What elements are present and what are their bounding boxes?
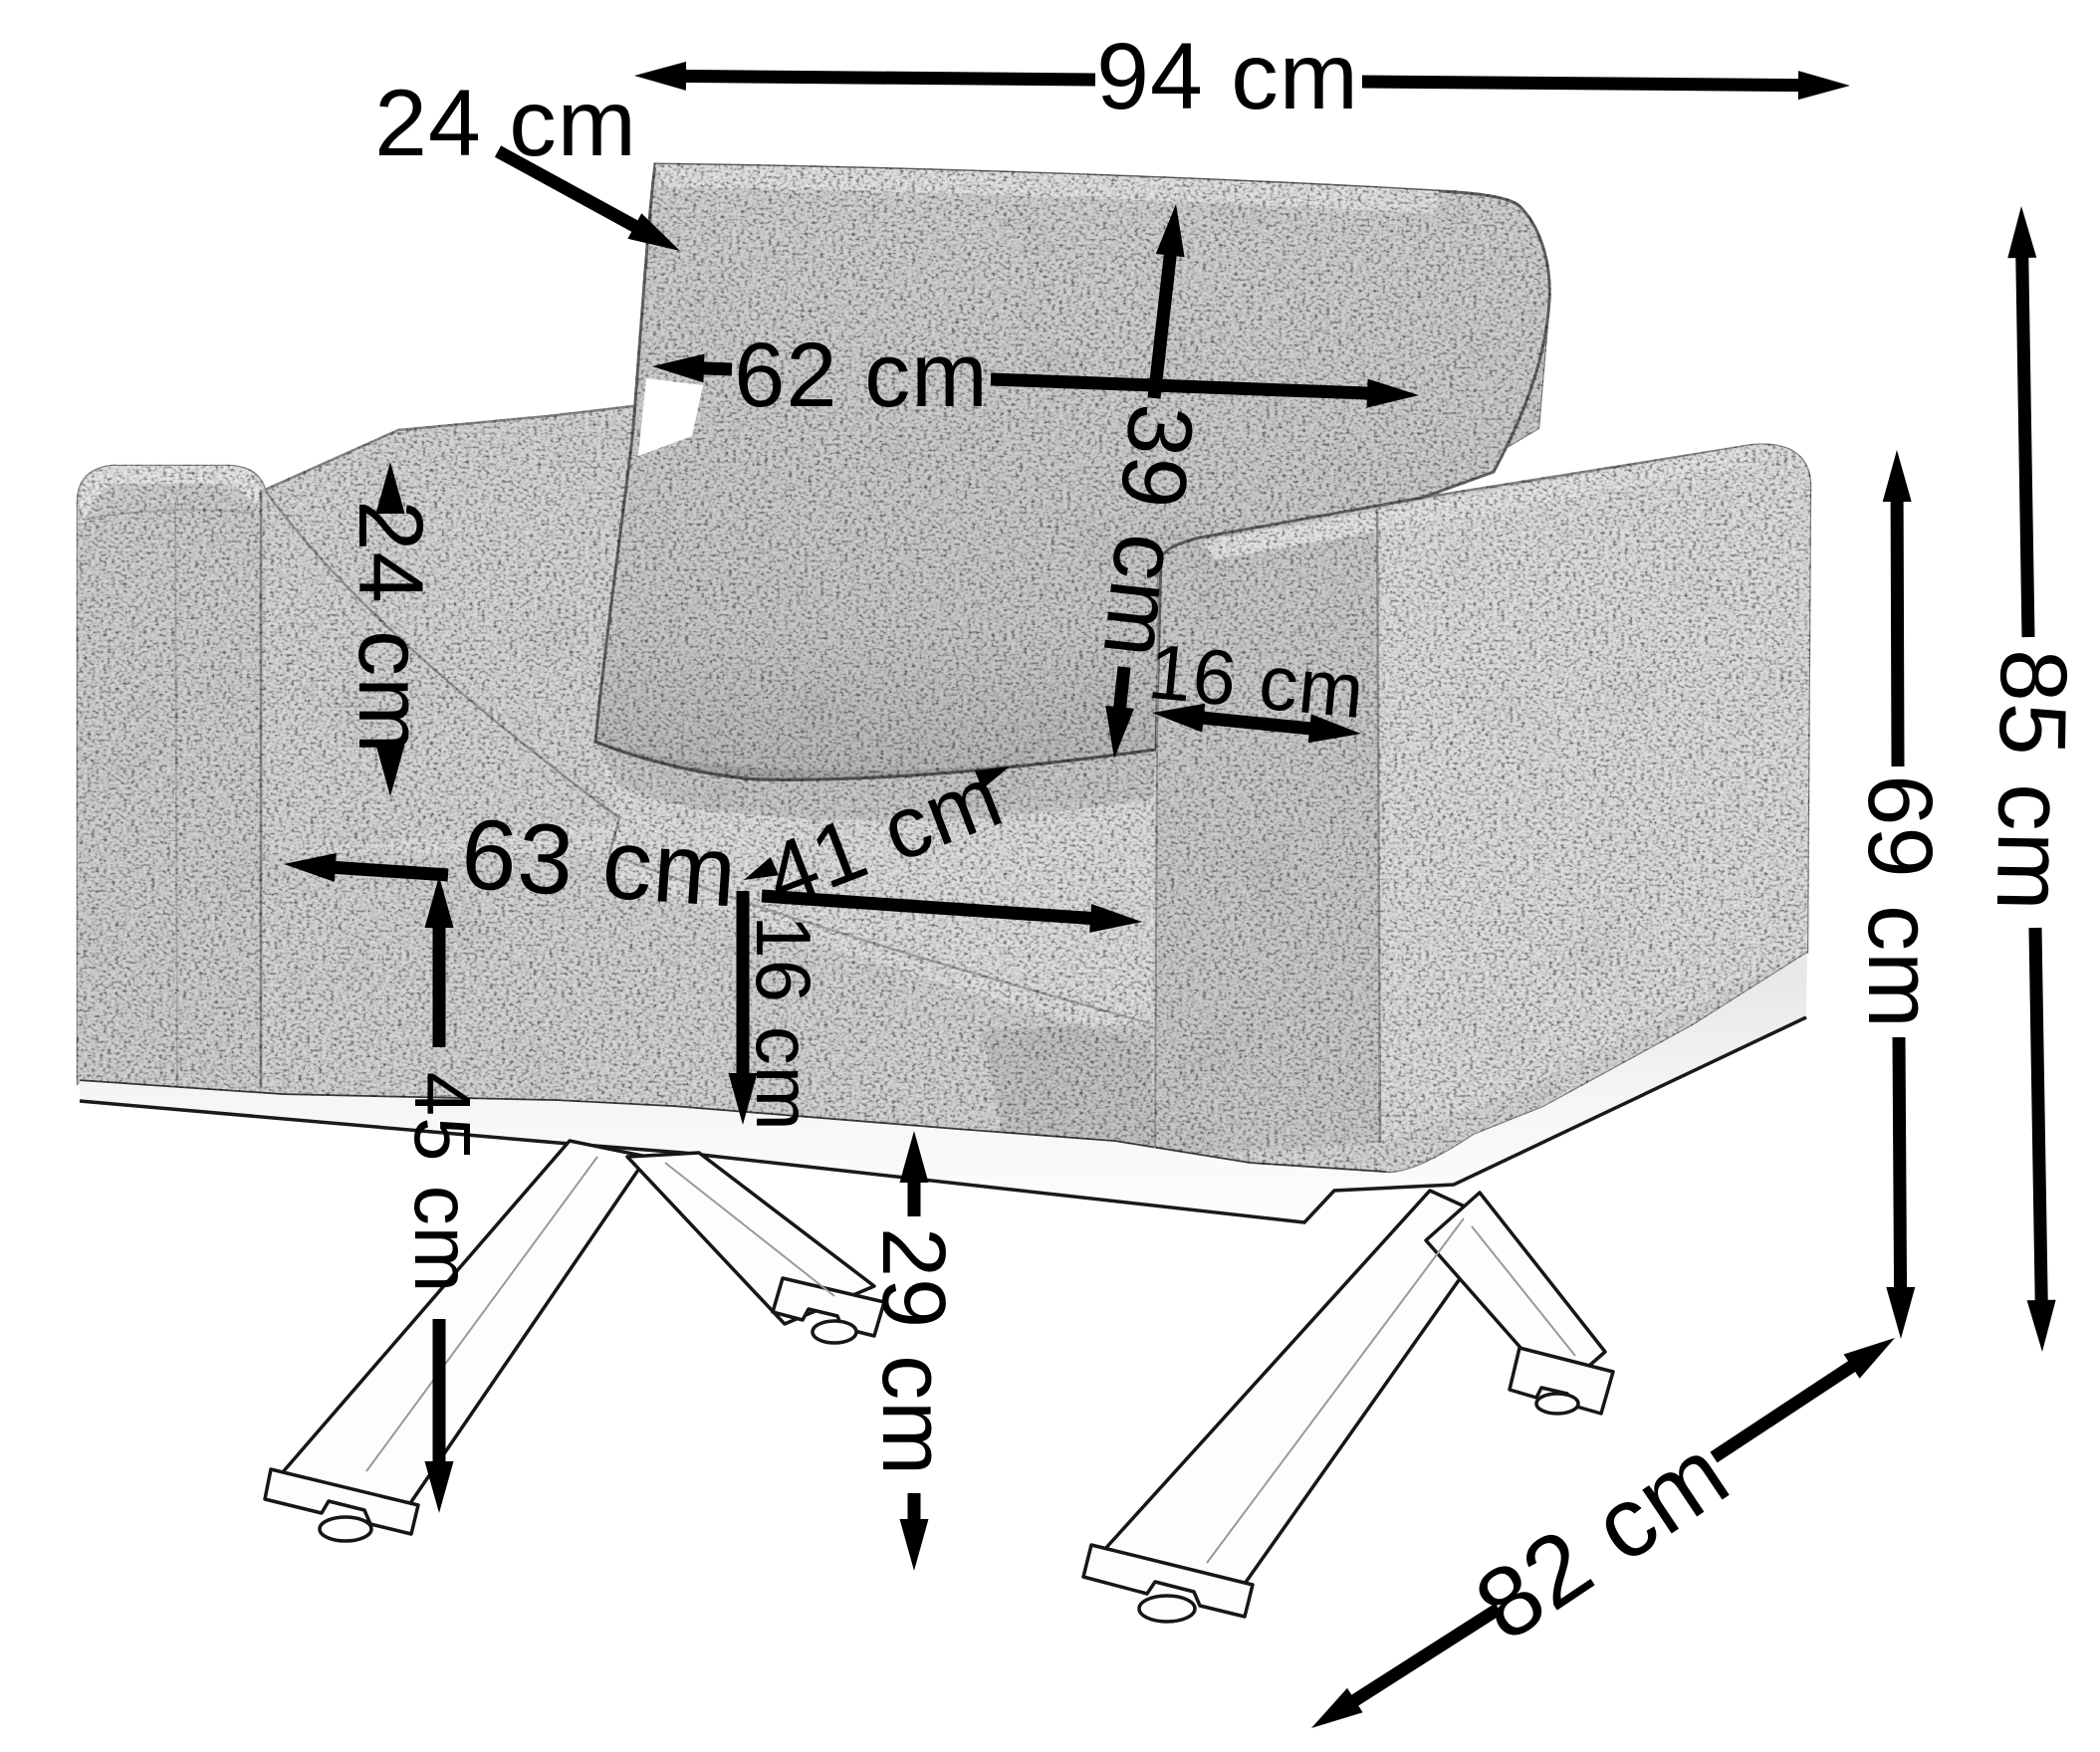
svg-text:16 cm: 16 cm <box>740 915 827 1131</box>
svg-text:24 cm: 24 cm <box>374 71 637 176</box>
svg-text:82 cm: 82 cm <box>1456 1417 1748 1662</box>
svg-text:63 cm: 63 cm <box>458 797 741 928</box>
svg-text:94 cm: 94 cm <box>1096 24 1359 129</box>
svg-text:45 cm: 45 cm <box>398 1072 487 1294</box>
svg-text:29 cm: 29 cm <box>863 1227 963 1476</box>
svg-text:85 cm: 85 cm <box>1977 648 2087 913</box>
svg-text:69 cm: 69 cm <box>1849 774 1951 1029</box>
svg-text:62 cm: 62 cm <box>734 325 989 426</box>
svg-text:24 cm: 24 cm <box>340 500 441 755</box>
